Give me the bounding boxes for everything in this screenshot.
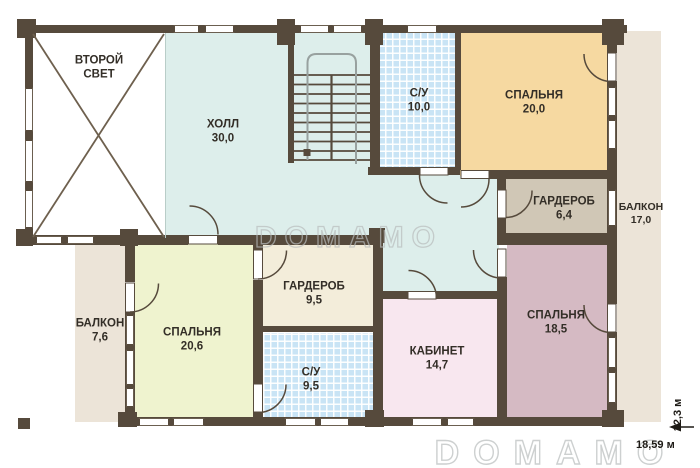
dimension-width: 18,59 м	[636, 439, 675, 451]
watermark: DOMAMO DOMAMO	[255, 221, 677, 468]
label-second-light: ВТОРОЙ СВЕТ	[60, 54, 138, 83]
watermark-center: DOMAMO	[255, 221, 443, 254]
label-bedroom-206: СПАЛЬНЯ20,6	[163, 326, 221, 355]
stairs-newel	[304, 149, 311, 156]
label-hall: ХОЛЛ30,0	[207, 118, 239, 147]
dimension-height: 12,3 м	[672, 399, 684, 432]
label-balcony-76: БАЛКОН7,6	[76, 317, 125, 346]
label-bedroom-20: СПАЛЬНЯ20,0	[505, 89, 563, 118]
label-wardrobe-64: ГАРДЕРОБ6,4	[533, 195, 595, 224]
label-bedroom-185: СПАЛЬНЯ18,5	[527, 309, 585, 338]
label-balcony-17: БАЛКОН17,0	[619, 201, 663, 227]
stairs	[294, 75, 370, 160]
label-wardrobe-95: ГАРДЕРОБ9,5	[283, 280, 345, 309]
label-office: КАБИНЕТ14,7	[410, 345, 465, 374]
floor-plan: DOMAMO DOMAMO ВТОРОЙ СВЕТ ХОЛЛ30,0 С/У10…	[0, 0, 700, 468]
label-bathroom-95: С/У9,5	[302, 366, 321, 395]
label-bathroom-10: С/У10,0	[408, 87, 430, 116]
